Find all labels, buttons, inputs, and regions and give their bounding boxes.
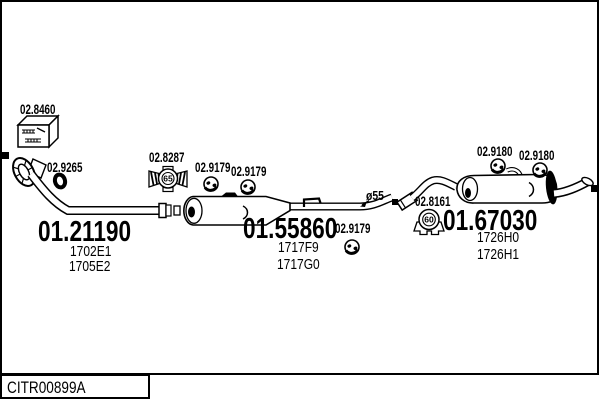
oe-ref-rear-1: 1726H0 (477, 230, 519, 245)
gasket-kit-icon (18, 116, 58, 147)
right-mount-marker (591, 185, 598, 192)
clamp-rear-size: 60 (424, 215, 434, 225)
rubber-hanger-icon-1 (204, 177, 218, 191)
rubber-hanger-icon-3 (345, 240, 359, 254)
oe-ref-front-2: 1705E2 (69, 259, 110, 274)
part-label-seal-ring: 02.9265 (47, 160, 82, 174)
clamp-centre-size: 65 (163, 174, 173, 184)
rubber-hanger-icon-2 (241, 180, 255, 194)
left-mount-marker (1, 152, 9, 159)
oe-ref-centre-2: 1717G0 (277, 257, 320, 272)
oe-ref-centre-1: 1717F9 (278, 240, 319, 255)
exhaust-parts-diagram: 65 60 02.8460 02.9265 02.8287 02.9179 02… (0, 0, 600, 400)
clamp-icon-centre: 65 (149, 167, 187, 192)
part-label-hanger-rear-1: 02.9180 (477, 144, 512, 158)
connector-sleeve-front (174, 206, 180, 215)
seal-ring-icon (53, 173, 66, 188)
part-label-gasket-kit: 02.8460 (20, 102, 55, 116)
diagram-artwork: 65 60 (0, 0, 600, 400)
part-label-hanger-centre-1: 02.9179 (195, 160, 230, 174)
oe-ref-rear-2: 1726H1 (477, 247, 519, 262)
clamp-icon-rear: 60 (414, 210, 444, 235)
rubber-hanger-icon-4 (491, 159, 505, 173)
pipe-diameter-note: ø55 (366, 189, 384, 202)
part-label-clamp-centre: 02.8287 (149, 150, 184, 164)
part-label-hanger-rear-2: 02.9180 (519, 148, 554, 162)
tailpipe-drawing (554, 176, 594, 194)
part-label-hanger-centre-3: 02.9179 (335, 221, 370, 235)
part-label-hanger-centre-2: 02.9179 (231, 164, 266, 178)
oe-ref-front-1: 1702E1 (70, 244, 111, 259)
rubber-hanger-icon-5 (533, 163, 547, 177)
catalog-code: CITR00899A (7, 379, 86, 396)
